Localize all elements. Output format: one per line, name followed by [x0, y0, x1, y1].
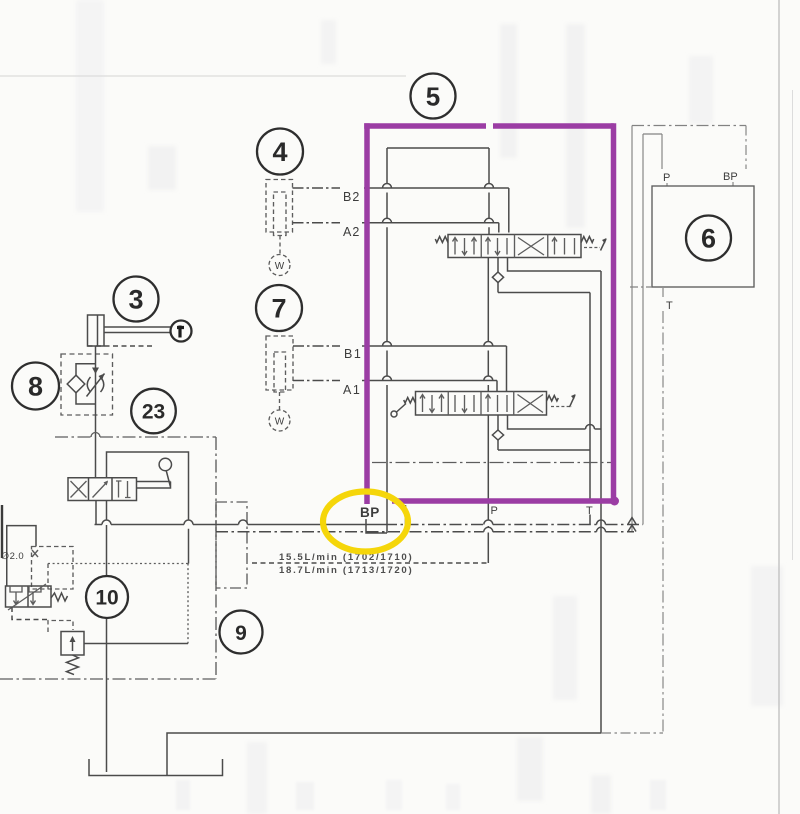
svg-text:18.7L/min (1713/1720): 18.7L/min (1713/1720): [279, 565, 413, 576]
svg-text:W: W: [275, 417, 285, 428]
svg-text:15.5L/min (1702/1710): 15.5L/min (1702/1710): [279, 552, 413, 563]
svg-text:P: P: [663, 172, 670, 184]
svg-text:9: 9: [235, 622, 247, 645]
svg-text:4: 4: [272, 137, 287, 167]
svg-text:B2: B2: [343, 190, 360, 204]
svg-text:T: T: [666, 300, 673, 312]
svg-text:W: W: [275, 261, 285, 272]
svg-text:23: 23: [142, 401, 165, 424]
svg-text:7: 7: [271, 294, 286, 324]
svg-text:6: 6: [701, 224, 716, 254]
svg-text:3: 3: [128, 285, 143, 315]
svg-text:P: P: [491, 505, 498, 517]
svg-text:A2: A2: [343, 225, 360, 239]
svg-text:5: 5: [426, 82, 440, 112]
svg-text:10: 10: [95, 587, 118, 610]
svg-text:BP: BP: [723, 171, 738, 183]
svg-text:B1: B1: [344, 347, 362, 361]
svg-text:8: 8: [28, 372, 43, 402]
svg-text:∅2.0: ∅2.0: [1, 551, 24, 562]
svg-text:BP: BP: [360, 505, 380, 520]
svg-text:T: T: [586, 505, 593, 517]
svg-text:A1: A1: [343, 383, 361, 397]
